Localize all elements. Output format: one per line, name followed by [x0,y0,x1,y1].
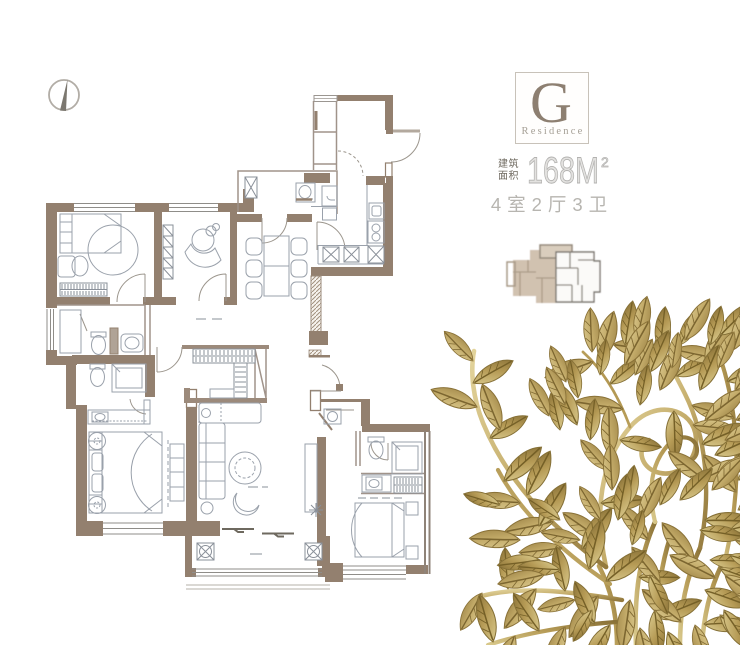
svg-text:Residence: Residence [522,126,585,137]
svg-text:面积: 面积 [498,170,519,182]
svg-text:4室2厅3卫: 4室2厅3卫 [491,194,613,215]
svg-text:2: 2 [601,154,609,170]
svg-text:建筑: 建筑 [498,157,519,170]
svg-text:168M: 168M [527,150,599,191]
